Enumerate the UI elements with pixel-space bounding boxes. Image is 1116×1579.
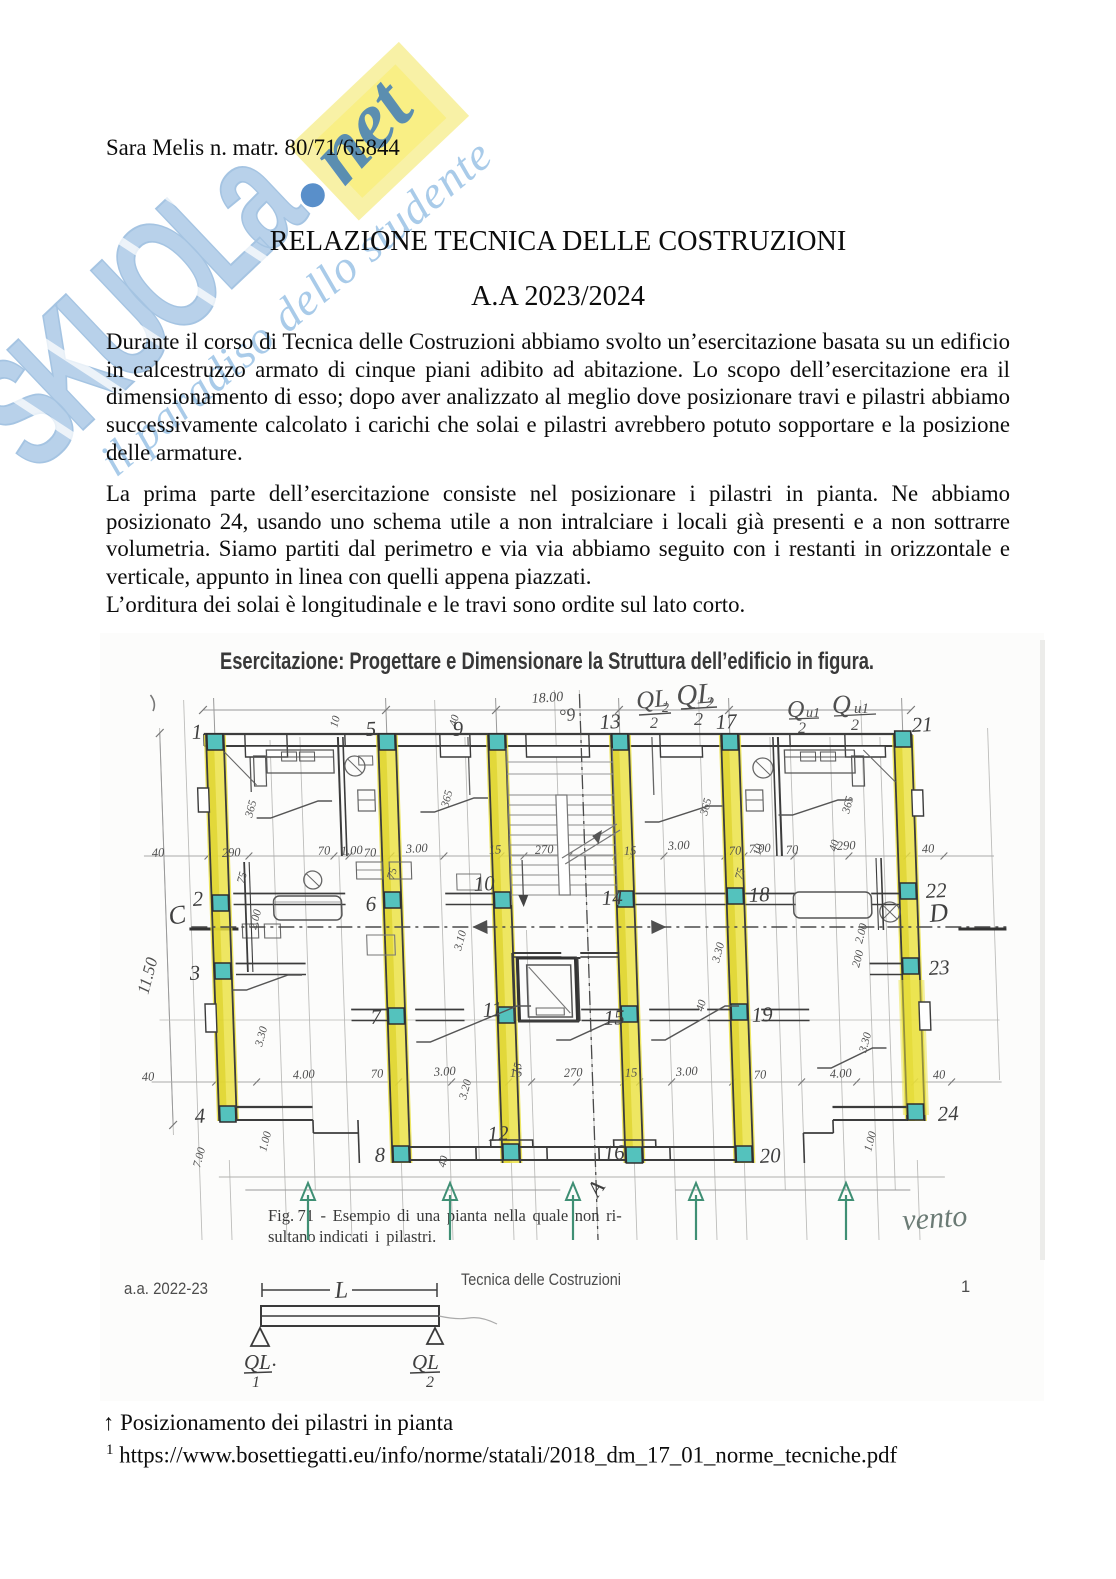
svg-text:3.00: 3.00 (404, 841, 428, 856)
svg-text:.: . (272, 1347, 277, 1371)
svg-text:270: 270 (563, 1065, 583, 1080)
svg-text:17: 17 (715, 709, 739, 734)
svg-text:L: L (333, 1277, 349, 1304)
svg-text:2: 2 (694, 709, 703, 729)
svg-text:16: 16 (603, 1140, 626, 1165)
svg-text:70: 70 (785, 842, 799, 857)
svg-text:70: 70 (370, 1066, 384, 1081)
svg-text:23: 23 (928, 955, 950, 980)
svg-text:2: 2 (426, 1374, 434, 1391)
svg-text:11: 11 (482, 997, 503, 1022)
svg-text:14: 14 (601, 885, 624, 910)
svg-text:10: 10 (473, 871, 496, 896)
svg-text:1: 1 (191, 719, 203, 744)
svg-text:6: 6 (365, 891, 377, 916)
svg-text:4.00: 4.00 (829, 1066, 852, 1081)
svg-text:1: 1 (252, 1374, 260, 1391)
svg-text:QL: QL (412, 1350, 439, 1374)
svg-text:15: 15 (603, 1005, 625, 1030)
svg-text:15: 15 (624, 1065, 637, 1080)
svg-text:18: 18 (748, 882, 771, 907)
svg-text:5: 5 (365, 716, 377, 741)
svg-text:sultano indicati i pilastri.: sultano indicati i pilastri. (268, 1227, 436, 1246)
svg-text:Esercitazione: Progettare e Di: Esercitazione: Progettare e Dimensionare… (220, 648, 874, 675)
svg-text:18.00: 18.00 (531, 690, 563, 707)
svg-text:4: 4 (194, 1103, 206, 1128)
svg-text:1.00: 1.00 (340, 843, 363, 858)
svg-text:3: 3 (188, 960, 201, 985)
svg-text:Tecnica delle Costruzioni: Tecnica delle Costruzioni (461, 1271, 621, 1289)
svg-text:70: 70 (363, 845, 377, 860)
svg-text:3.00: 3.00 (432, 1064, 456, 1079)
svg-text:40: 40 (141, 1069, 155, 1084)
svg-text:12: 12 (487, 1121, 510, 1146)
svg-text:4.00: 4.00 (292, 1067, 315, 1082)
svg-text:Fig. 71 - Esempio di una: Fig. 71 - Esempio di una pianta nella qu… (268, 1206, 622, 1225)
svg-text:D: D (927, 897, 949, 928)
svg-text:290: 290 (221, 845, 241, 860)
svg-text:70: 70 (753, 1067, 767, 1082)
svg-text:21: 21 (911, 712, 933, 737)
svg-text:2: 2 (798, 720, 806, 737)
svg-text:3.00: 3.00 (674, 1064, 698, 1079)
svg-text:15: 15 (488, 842, 501, 857)
svg-text:15: 15 (623, 843, 636, 858)
svg-text:vento: vento (901, 1200, 968, 1237)
svg-text:QL: QL (244, 1350, 271, 1374)
svg-text:270: 270 (534, 842, 554, 857)
svg-text:40: 40 (921, 841, 935, 856)
svg-text:70: 70 (317, 843, 331, 858)
svg-text:8: 8 (374, 1142, 386, 1167)
svg-text:24: 24 (937, 1101, 960, 1126)
svg-text:70: 70 (728, 843, 742, 858)
svg-text:2: 2 (851, 717, 859, 734)
svg-text:2: 2 (706, 695, 714, 712)
svg-text:3.00: 3.00 (666, 838, 690, 853)
svg-text:20: 20 (759, 1143, 782, 1168)
svg-text:19: 19 (751, 1002, 774, 1027)
svg-text:1: 1 (961, 1278, 970, 1296)
svg-text:2: 2 (650, 715, 658, 732)
svg-text:2: 2 (192, 886, 204, 911)
svg-text:40: 40 (151, 845, 165, 860)
svg-text:Q: Q (832, 690, 851, 719)
svg-text:a.a. 2022-23: a.a. 2022-23 (124, 1280, 208, 1298)
svg-text:40: 40 (932, 1067, 946, 1082)
svg-text:°9: °9 (558, 704, 577, 726)
svg-text:13: 13 (599, 709, 621, 734)
